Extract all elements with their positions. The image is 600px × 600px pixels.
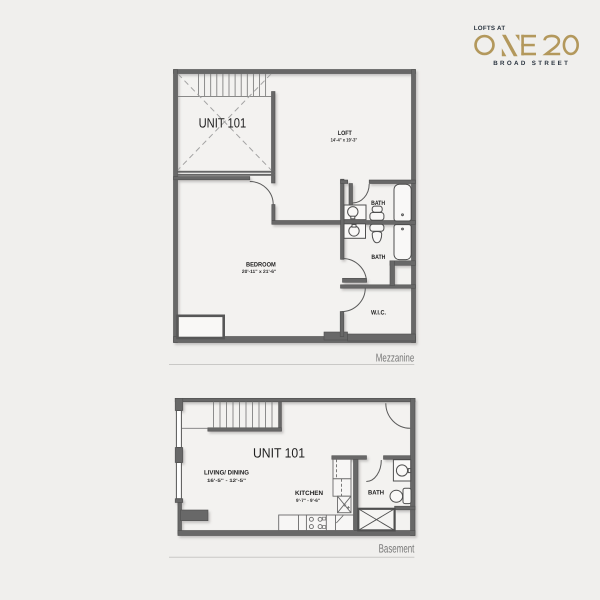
svg-text:Basement: Basement	[379, 542, 415, 556]
svg-text:14'-4" x 19'-3": 14'-4" x 19'-3"	[331, 138, 358, 144]
svg-text:LOFT: LOFT	[338, 130, 352, 137]
svg-text:KITCHEN: KITCHEN	[295, 490, 323, 497]
svg-text:16'-5" - 12'-5": 16'-5" - 12'-5"	[207, 478, 246, 484]
svg-text:20'-11" x 21'-6": 20'-11" x 21'-6"	[242, 269, 276, 275]
svg-text:UNIT 101: UNIT 101	[199, 116, 247, 131]
svg-text:Mezzanine: Mezzanine	[376, 352, 415, 364]
svg-text:W.I.C.: W.I.C.	[371, 309, 386, 316]
svg-text:BATH: BATH	[371, 254, 385, 261]
svg-text:BATH: BATH	[371, 200, 385, 207]
svg-text:LOFTS AT: LOFTS AT	[474, 25, 506, 32]
svg-text:BEDROOM: BEDROOM	[246, 261, 276, 268]
svg-text:9'-7" - 9'-6": 9'-7" - 9'-6"	[296, 498, 320, 504]
svg-text:LIVING/ DINING: LIVING/ DINING	[204, 469, 249, 476]
svg-text:BATH: BATH	[368, 489, 384, 496]
svg-text:UNIT 101: UNIT 101	[253, 446, 305, 461]
